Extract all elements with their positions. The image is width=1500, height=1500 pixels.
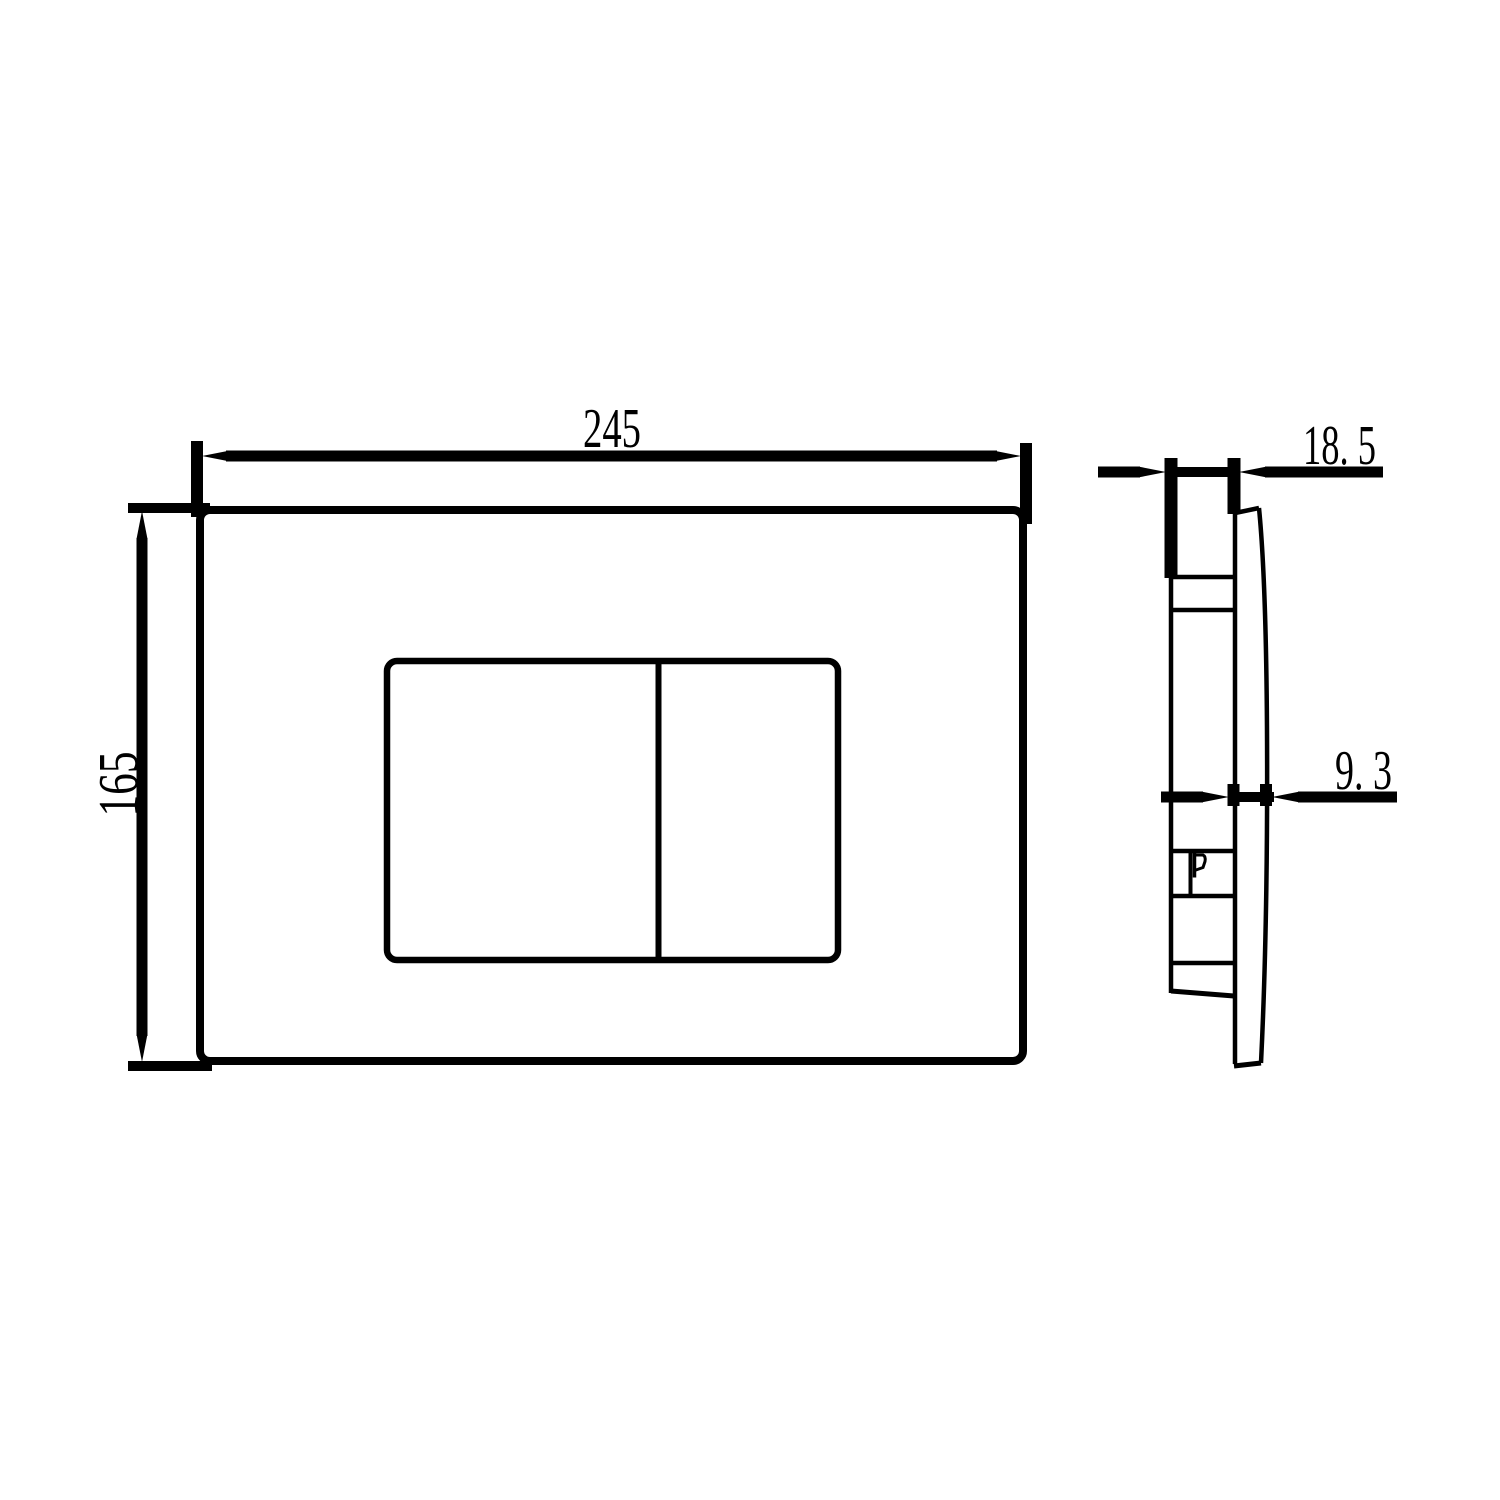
svg-text:18. 5: 18. 5 bbox=[1303, 415, 1376, 477]
svg-text:9. 3: 9. 3 bbox=[1335, 740, 1392, 802]
svg-text:245: 245 bbox=[583, 398, 641, 460]
svg-text:165: 165 bbox=[88, 752, 150, 817]
